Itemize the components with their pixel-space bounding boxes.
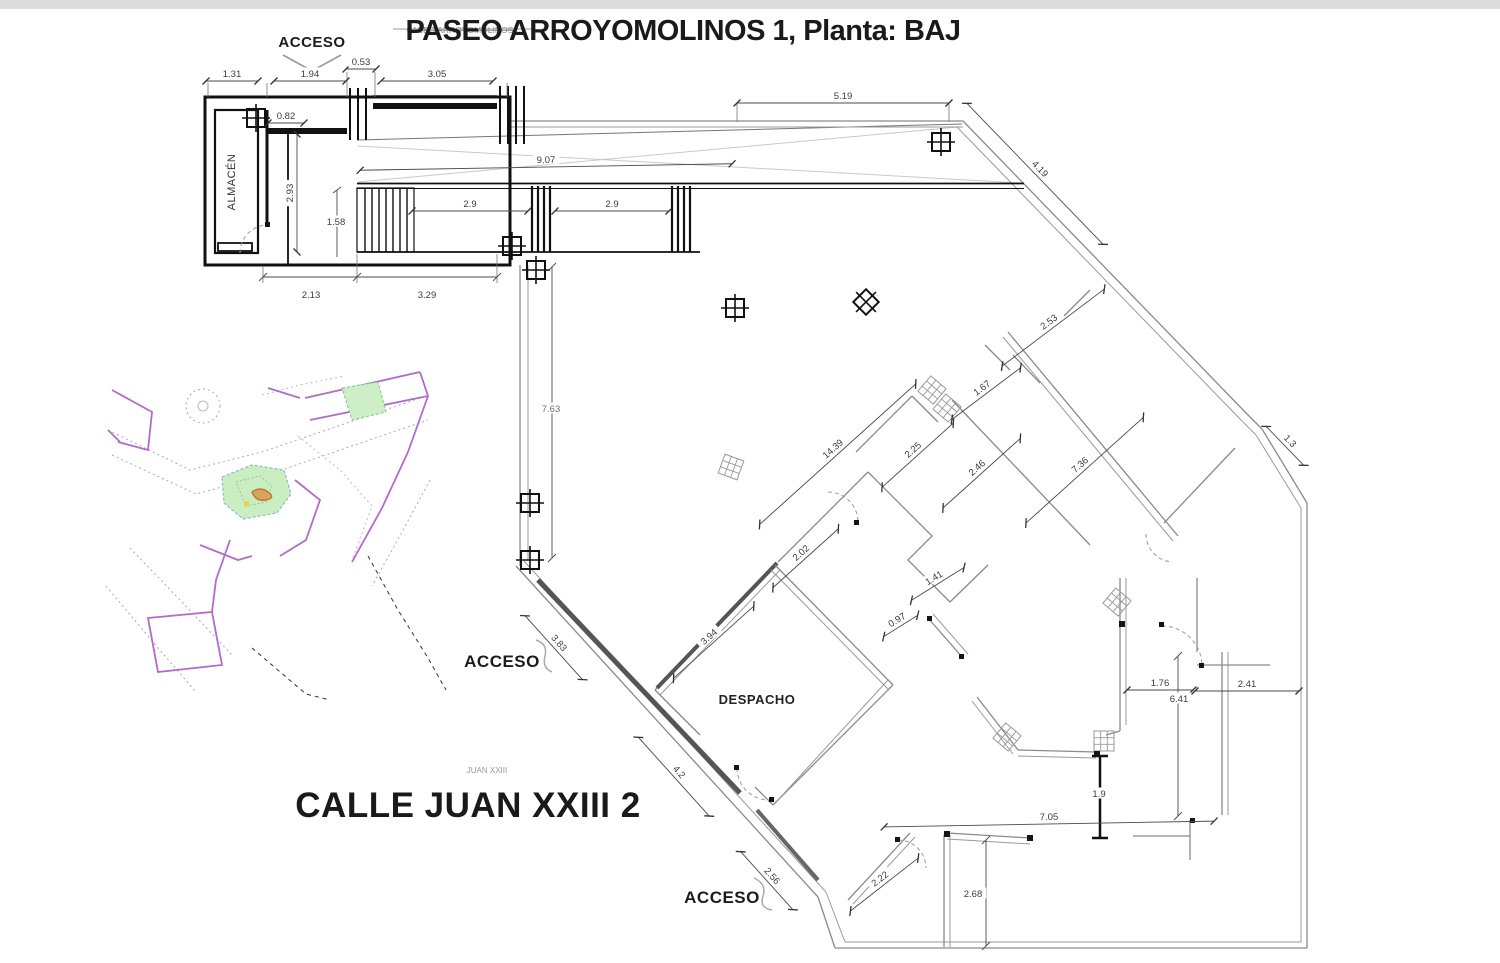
- dimension-annotation: 1.67: [941, 355, 1026, 425]
- svg-text:2.41: 2.41: [1238, 679, 1257, 690]
- room-label: ACCESO: [278, 34, 345, 51]
- dimension-annotation: 2.53: [991, 276, 1109, 371]
- svg-text:3.05: 3.05: [428, 69, 447, 80]
- floorplan-page: 1.311.940.533.050.822.931.589.072.92.92.…: [0, 0, 1500, 963]
- dimension-annotation: 9.07: [356, 150, 735, 174]
- svg-text:ALMACÉN: ALMACÉN: [225, 154, 238, 211]
- room-label: ALMACÉN: [225, 154, 238, 211]
- svg-text:9.07: 9.07: [537, 155, 556, 166]
- svg-text:0.82: 0.82: [277, 111, 296, 122]
- stairs-treads: [365, 189, 407, 252]
- dimension-annotation: 7.36: [1014, 405, 1148, 528]
- svg-text:DESPACHO: DESPACHO: [719, 692, 796, 707]
- dimension-annotation: 1.9: [1089, 788, 1110, 801]
- pillar-cluster-1: [532, 186, 550, 252]
- dimension-annotation: 4.19: [962, 91, 1115, 249]
- svg-text:2.93: 2.93: [285, 184, 296, 203]
- dimension-annotation: 3.83: [520, 604, 595, 684]
- dimension-annotation: 2.46: [931, 426, 1025, 513]
- street-label: CALLE JUAN XXIII 2: [295, 786, 640, 825]
- svg-text:5.19: 5.19: [834, 91, 853, 102]
- map-roundabout: [186, 389, 220, 423]
- map-green-area: [342, 382, 386, 420]
- dimension-annotation: 1.31: [203, 68, 262, 85]
- dimension-annotation: 1.41: [901, 554, 969, 605]
- svg-text:1.9: 1.9: [1092, 789, 1105, 800]
- dimension-annotation: 2.68: [960, 888, 986, 901]
- svg-text:1.94: 1.94: [301, 69, 320, 80]
- dimension-annotation: 1.76: [1124, 677, 1197, 694]
- canopy-band: [357, 184, 1024, 253]
- columns-layer: [242, 104, 1131, 751]
- dimension-annotation: 3.29: [414, 289, 440, 302]
- dimension-annotation: 2.22: [839, 845, 923, 916]
- dimension-annotation: 4.2: [633, 726, 721, 821]
- svg-text:2.13: 2.13: [302, 290, 321, 301]
- svg-text:1.76: 1.76: [1151, 678, 1170, 689]
- dimension-annotation: 0.82: [265, 110, 308, 127]
- dimension-annotation: 2.13: [298, 289, 324, 302]
- room-label: ACCESO: [684, 888, 760, 907]
- svg-text:ACCESO: ACCESO: [684, 888, 760, 907]
- floor-plan-canvas: 1.311.940.533.050.822.931.589.072.92.92.…: [0, 0, 1500, 963]
- svg-text:ACCESO: ACCESO: [278, 34, 345, 51]
- dimension-annotation: 6.41: [1166, 693, 1192, 706]
- svg-text:7.05: 7.05: [1040, 812, 1059, 823]
- room-label: ACCESO: [464, 652, 540, 671]
- dimension-annotation: 2.41: [1192, 678, 1303, 695]
- dimension-annotation: 0.97: [874, 602, 923, 641]
- dimension-annotation: 1.94: [271, 68, 350, 85]
- room-label: DESPACHO: [719, 692, 796, 707]
- canopy-construction-lines: [357, 124, 1022, 183]
- dimension-annotation: 2.25: [870, 411, 958, 493]
- svg-text:6.41: 6.41: [1170, 694, 1189, 705]
- map-yellow-mark: [244, 501, 249, 506]
- map-parcel-lines: [108, 372, 428, 672]
- svg-text:2.68: 2.68: [964, 889, 983, 900]
- dimension-annotation: 2.93: [284, 131, 301, 256]
- top-edge-strip: [0, 0, 1500, 9]
- svg-text:0.53: 0.53: [352, 57, 371, 68]
- despacho-room: [655, 563, 893, 805]
- dimension-annotation: 5.19: [734, 90, 953, 107]
- svg-text:7.63: 7.63: [542, 404, 561, 415]
- dimension-annotation: 2.9: [409, 198, 532, 215]
- svg-text:1.58: 1.58: [327, 217, 346, 228]
- page-title: PASEO ARROYOMOLINOS 1, Planta: BAJ: [405, 15, 960, 47]
- svg-text:2.9: 2.9: [605, 199, 618, 210]
- dimension-annotation: 7.05: [880, 808, 1217, 831]
- dimension-annotation: 7.63: [538, 403, 564, 416]
- pillar-cluster-2: [672, 186, 690, 252]
- dimension-annotation: 2.9: [552, 198, 673, 215]
- street-label-small: JUAN XXIII: [467, 766, 507, 775]
- dimension-annotation: 1.58: [323, 216, 349, 229]
- location-map-inset: [106, 372, 446, 700]
- svg-text:1.31: 1.31: [223, 69, 242, 80]
- dimension-annotation: 0.53: [343, 56, 380, 73]
- svg-text:3.29: 3.29: [418, 290, 437, 301]
- svg-text:2.9: 2.9: [463, 199, 476, 210]
- dimension-annotation: 2.02: [761, 516, 843, 592]
- dimension-annotation: 3.05: [378, 68, 497, 85]
- svg-text:ACCESO: ACCESO: [464, 652, 540, 671]
